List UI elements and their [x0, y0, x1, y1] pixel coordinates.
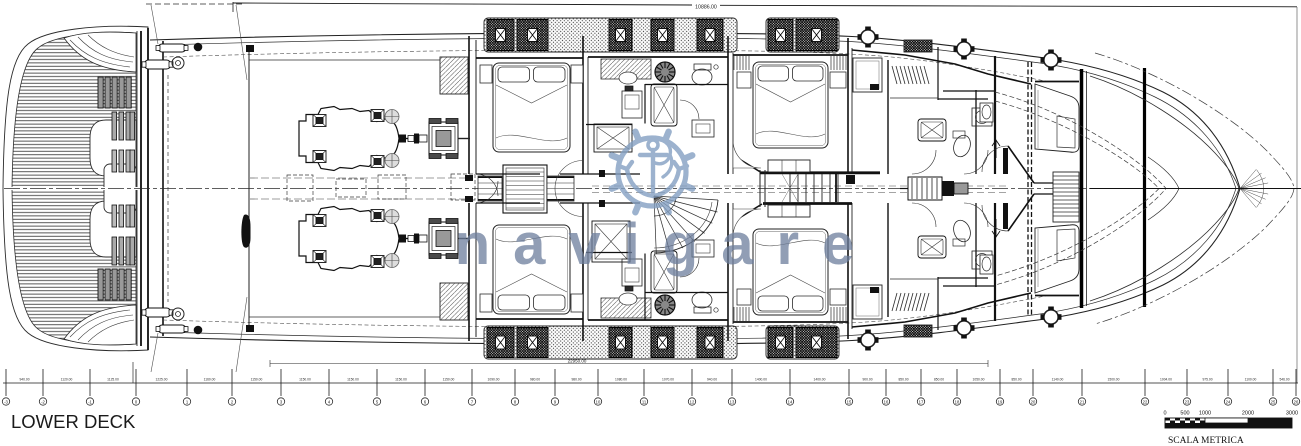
svg-text:13: 13 [730, 399, 735, 404]
svg-text:850.00: 850.00 [1011, 378, 1021, 382]
svg-text:-2: -2 [41, 399, 45, 404]
svg-text:1225.00: 1225.00 [156, 378, 168, 382]
svg-text:1160.00: 1160.00 [204, 378, 216, 382]
svg-text:546.00: 546.00 [1279, 378, 1289, 382]
svg-text:975.00: 975.00 [1202, 378, 1212, 382]
svg-text:500: 500 [1180, 411, 1189, 417]
svg-text:1150.00: 1150.00 [443, 378, 455, 382]
svg-text:1150.00: 1150.00 [299, 378, 311, 382]
svg-text:24: 24 [1226, 399, 1231, 404]
svg-text:2000: 2000 [1242, 411, 1254, 417]
svg-text:SCALA METRICA: SCALA METRICA [1168, 436, 1244, 446]
svg-text:900.00: 900.00 [862, 378, 872, 382]
svg-text:22950.00: 22950.00 [568, 359, 587, 364]
svg-text:1080.00: 1080.00 [615, 378, 627, 382]
svg-text:1000: 1000 [1199, 411, 1211, 417]
svg-text:21: 21 [1080, 399, 1085, 404]
svg-text:10: 10 [596, 399, 601, 404]
svg-text:1100.00: 1100.00 [1245, 378, 1257, 382]
svg-text:850.00: 850.00 [934, 378, 944, 382]
svg-text:23: 23 [1185, 399, 1190, 404]
svg-text:11: 11 [642, 399, 647, 404]
svg-text:LOWER DECK: LOWER DECK [11, 411, 136, 432]
svg-text:16: 16 [884, 399, 889, 404]
svg-text:19: 19 [998, 399, 1003, 404]
svg-text:940.00: 940.00 [19, 378, 29, 382]
svg-text:3000: 3000 [1286, 411, 1298, 417]
svg-text:1400.00: 1400.00 [755, 378, 767, 382]
svg-text:1125.00: 1125.00 [107, 378, 119, 382]
svg-text:1150.00: 1150.00 [395, 378, 407, 382]
svg-text:10886.00: 10886.00 [695, 5, 717, 11]
svg-text:15: 15 [847, 399, 852, 404]
svg-text:17: 17 [919, 399, 924, 404]
svg-text:1090.00: 1090.00 [488, 378, 500, 382]
svg-text:12: 12 [690, 399, 695, 404]
svg-text:-1: -1 [88, 399, 92, 404]
svg-text:1150.00: 1150.00 [251, 378, 263, 382]
svg-text:18: 18 [955, 399, 960, 404]
svg-text:1150.00: 1150.00 [347, 378, 359, 382]
svg-text:25: 25 [1271, 399, 1276, 404]
svg-text:980.00: 980.00 [530, 378, 540, 382]
svg-text:22: 22 [1143, 399, 1148, 404]
svg-text:26: 26 [1294, 399, 1299, 404]
svg-text:14: 14 [788, 399, 793, 404]
svg-text:1400.00: 1400.00 [814, 378, 826, 382]
svg-text:980.00: 980.00 [571, 378, 581, 382]
svg-text:850.00: 850.00 [898, 378, 908, 382]
svg-text:1050.00: 1050.00 [973, 378, 985, 382]
svg-text:-3: -3 [4, 399, 8, 404]
svg-text:1004.00: 1004.00 [1160, 378, 1172, 382]
svg-text:0: 0 [1163, 411, 1166, 417]
svg-text:20: 20 [1031, 399, 1036, 404]
svg-text:940.00: 940.00 [707, 378, 717, 382]
svg-text:1140.00: 1140.00 [1052, 378, 1064, 382]
svg-text:1120.00: 1120.00 [61, 378, 73, 382]
svg-text:1070.00: 1070.00 [662, 378, 674, 382]
svg-text:1500.00: 1500.00 [1108, 378, 1120, 382]
svg-text:navigare: navigare [455, 212, 878, 277]
